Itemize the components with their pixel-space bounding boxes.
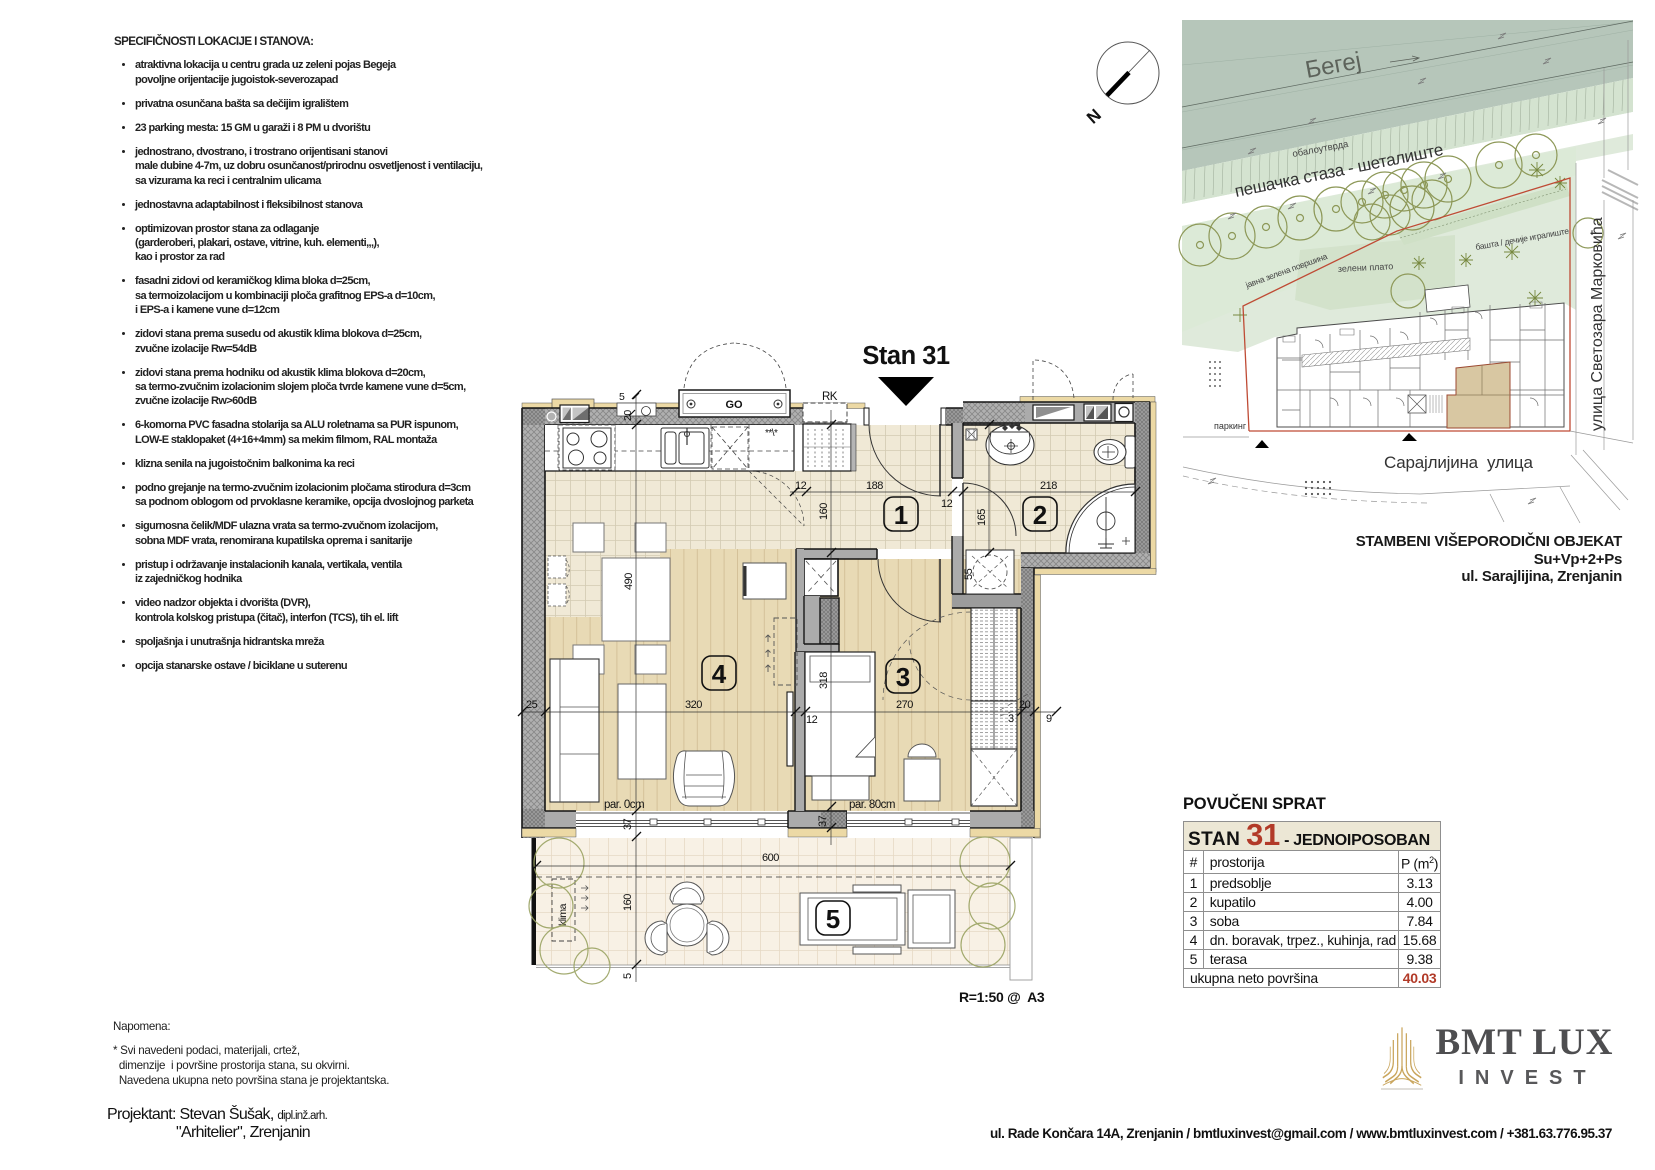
svg-text:12: 12	[806, 714, 818, 726]
svg-text:улица Светозара Марковића: улица Светозара Марковића	[1589, 217, 1606, 431]
svg-text:37: 37	[622, 818, 634, 830]
svg-text:Stan 31: Stan 31	[862, 342, 950, 370]
svg-text:4: 4	[712, 659, 727, 689]
svg-text:Сарајлијина улица: Сарајлијина улица	[1384, 453, 1533, 472]
svg-text:GO: GO	[725, 399, 743, 411]
svg-text:55: 55	[963, 568, 975, 580]
svg-text:188: 188	[866, 480, 883, 492]
svg-text:R=1:50 @ A3: R=1:50 @ A3	[959, 989, 1045, 1005]
svg-text:5: 5	[622, 973, 634, 979]
svg-text:5: 5	[619, 391, 625, 403]
svg-text:20: 20	[1019, 699, 1031, 711]
svg-text:9: 9	[1046, 713, 1052, 725]
svg-text:218: 218	[1040, 480, 1057, 492]
svg-text:3: 3	[896, 662, 910, 692]
svg-text:par. 80cm: par. 80cm	[849, 799, 895, 811]
svg-text:270: 270	[896, 699, 913, 711]
svg-text:N: N	[1083, 105, 1105, 127]
svg-text:klima: klima	[557, 903, 569, 926]
svg-text:25: 25	[526, 699, 538, 711]
svg-text:паркинг: паркинг	[1214, 421, 1247, 431]
svg-text:5: 5	[826, 904, 840, 934]
svg-text:165: 165	[976, 509, 988, 526]
svg-text:37: 37	[817, 815, 829, 827]
svg-text:RK: RK	[822, 391, 838, 403]
svg-text:2: 2	[1033, 500, 1047, 530]
svg-text:160: 160	[622, 894, 634, 911]
svg-text:600: 600	[762, 852, 779, 864]
svg-text:20: 20	[622, 410, 634, 421]
svg-text:12: 12	[941, 498, 953, 510]
svg-text:320: 320	[685, 699, 702, 711]
svg-text:490: 490	[623, 573, 635, 590]
svg-text:318: 318	[818, 672, 830, 689]
svg-text:3: 3	[1008, 713, 1014, 725]
svg-text:12: 12	[795, 480, 807, 492]
svg-text:1: 1	[894, 500, 908, 530]
svg-text:**\*: **\*	[765, 428, 778, 439]
svg-text:160: 160	[818, 503, 830, 520]
